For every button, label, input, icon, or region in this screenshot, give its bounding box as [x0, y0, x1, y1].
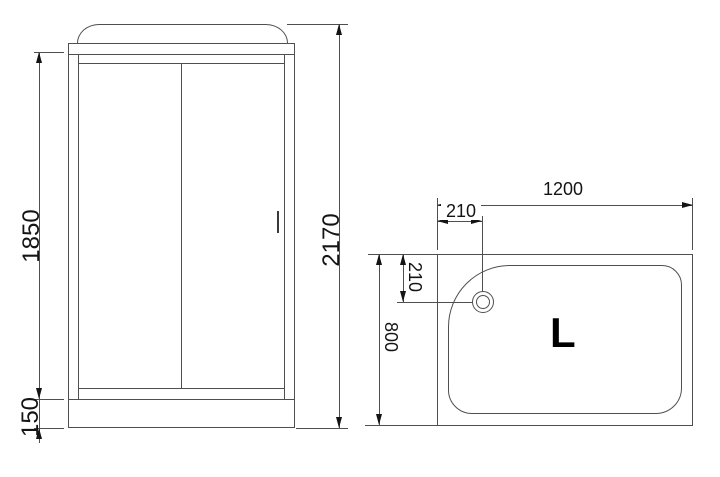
dim-800-arrow-top — [376, 254, 382, 265]
dim-label-door-height: 1850 — [20, 203, 40, 269]
cabin-frame-left-inner — [78, 54, 79, 400]
dim-2170-arrow-top — [336, 24, 342, 35]
dim-210v-arrow-bottom — [400, 291, 406, 302]
cabin-frame-right-outer — [294, 54, 295, 400]
dim-800-line — [379, 254, 380, 426]
dim-2170-ext-bottom — [296, 428, 348, 429]
dim-label-drain-offset-vertical: 210 — [408, 256, 424, 298]
dim-800-arrow-bottom — [376, 414, 382, 425]
tray-orientation-label: L — [550, 312, 576, 354]
dim-label-base-height: 150 — [19, 392, 39, 442]
cabin-dome — [77, 24, 288, 44]
door-handle — [277, 211, 279, 233]
cabin-base — [68, 399, 295, 428]
dim-2170-arrow-bottom — [336, 417, 342, 428]
dim-label-drain-offset-horizontal: 210 — [441, 202, 481, 220]
dim-label-tray-depth: 800 — [384, 316, 400, 358]
dim-1200-arrow-right — [682, 202, 693, 208]
door-split-line — [181, 64, 182, 388]
cabin-frame-right-inner — [284, 54, 285, 400]
dim-label-total-height: 2170 — [320, 207, 340, 273]
dim-800-ext-bottom — [365, 425, 437, 426]
cabin-frame-left-outer — [68, 54, 69, 400]
dim-label-tray-width: 1200 — [533, 180, 593, 198]
door-bottom-line — [78, 388, 285, 389]
drain-inner-circle — [476, 295, 490, 309]
cabin-top-frame — [68, 43, 295, 55]
dim-1850-arrow-top — [36, 52, 42, 63]
technical-drawing-canvas: 1850 150 2170 1200 210 — [0, 0, 720, 477]
